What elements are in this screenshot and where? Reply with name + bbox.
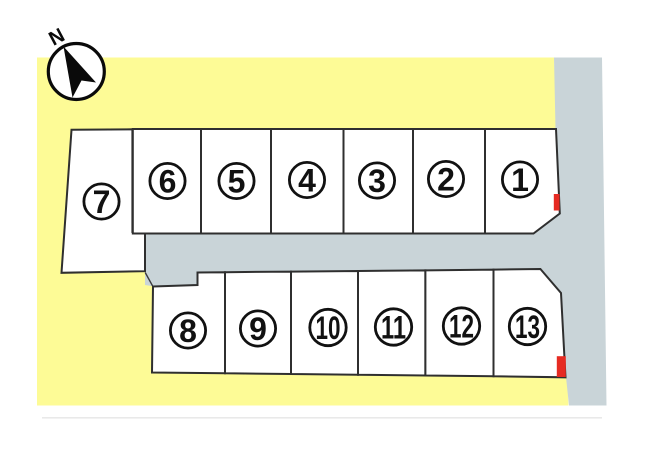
svg-text:11: 11 [381,309,406,345]
svg-text:10: 10 [316,310,341,346]
svg-text:3: 3 [368,163,386,199]
svg-text:1: 1 [511,162,529,198]
svg-text:2: 2 [437,161,455,197]
svg-text:12: 12 [449,308,474,344]
svg-text:13: 13 [515,309,540,345]
svg-text:6: 6 [159,163,177,199]
svg-text:4: 4 [298,162,316,198]
svg-text:8: 8 [179,313,197,349]
svg-text:5: 5 [228,163,246,199]
svg-text:7: 7 [93,184,111,220]
svg-text:9: 9 [249,311,267,347]
